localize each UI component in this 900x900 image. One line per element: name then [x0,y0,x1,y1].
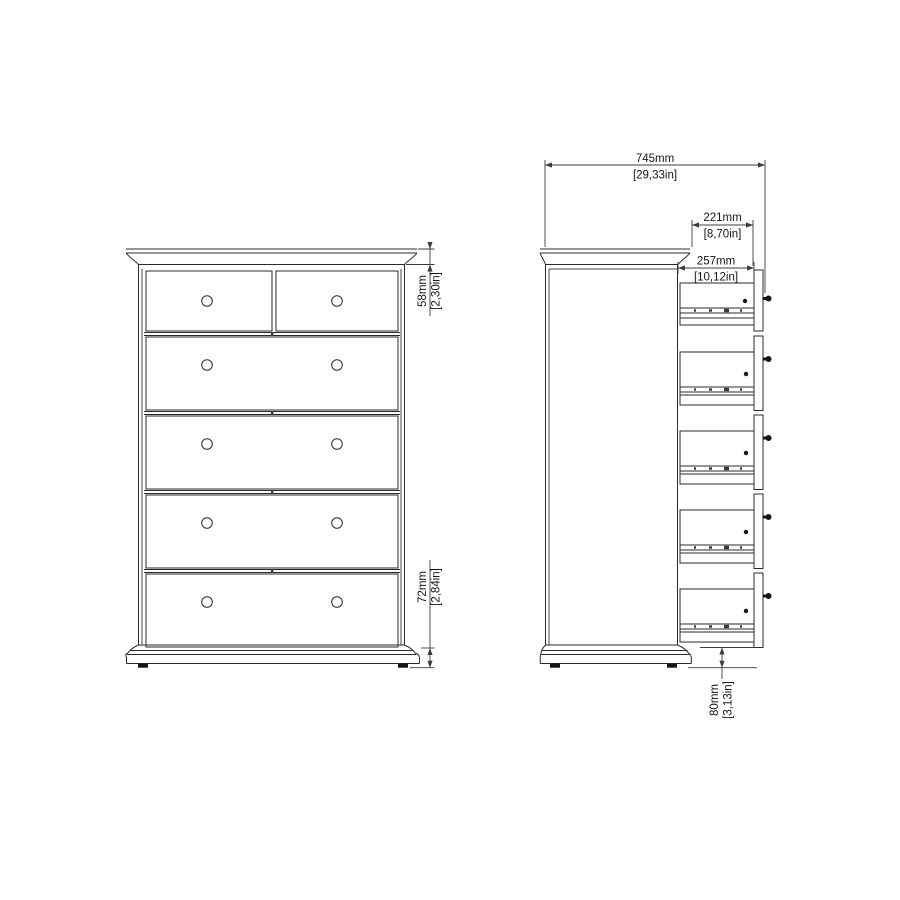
front-rail [144,332,400,336]
drawer-front-small-right [276,271,398,331]
side-drawer-unit-4 [680,494,772,569]
side-cabinet-body [546,265,678,646]
side-drawer-unit-3 [680,415,772,490]
front-rail [144,569,400,573]
dim-total-inch: [29,33in] [633,170,677,182]
dim-total-mm: 745mm [636,153,674,165]
front-base-plinth [126,645,420,668]
front-foot-right [398,664,408,668]
dim-base-inch: [2,84in] [431,568,443,606]
drawer-knob [332,296,343,307]
dim-depth-inch: [10,12in] [694,272,738,284]
dim-base-side-inch: [3,13in] [723,681,735,719]
side-drawer-unit-2 [680,336,772,411]
dim-extension-inch: [8,70in] [704,229,742,241]
side-foot-left [550,664,560,668]
front-drawer-row-3 [146,416,398,489]
dim-crown-inch: [2,30in] [431,272,443,310]
front-drawer-row-2 [146,337,398,410]
front-crown-molding [126,249,417,265]
dimension-base-height-front: 72mm [2,84in] [410,560,443,668]
front-rail [144,490,400,494]
dim-base-side-mm: 80mm [709,684,721,716]
front-drawer-row-5 [146,574,398,647]
front-drawer-row-1 [146,271,398,331]
dim-depth-mm: 257mm [697,256,735,268]
front-rail [144,411,400,415]
side-view: 745mm [29,33in] 221mm [8,70in] 257mm [10… [540,153,772,719]
side-crown-molding [540,249,690,265]
side-base-plinth [540,645,691,668]
dim-extension-mm: 221mm [703,212,741,224]
dim-base-mm: 72mm [417,571,429,603]
front-view: 58mm [2,30in] 72mm [2,84in] [126,242,443,668]
technical-drawing-canvas: 58mm [2,30in] 72mm [2,84in] [0,0,900,900]
chest-of-drawers-drawing: 58mm [2,30in] 72mm [2,84in] [0,0,900,900]
dimension-drawer-depth: 257mm [10,12in] [678,256,754,284]
side-drawer-unit-5 [680,573,772,648]
drawer-front-small-left [146,271,272,331]
side-foot-right [667,664,677,668]
drawer-knob [202,296,213,307]
front-drawer-row-4 [146,495,398,568]
dimension-base-height-side: 80mm [3,13in] [688,648,757,719]
front-foot-left [138,664,148,668]
dim-crown-mm: 58mm [417,275,429,307]
